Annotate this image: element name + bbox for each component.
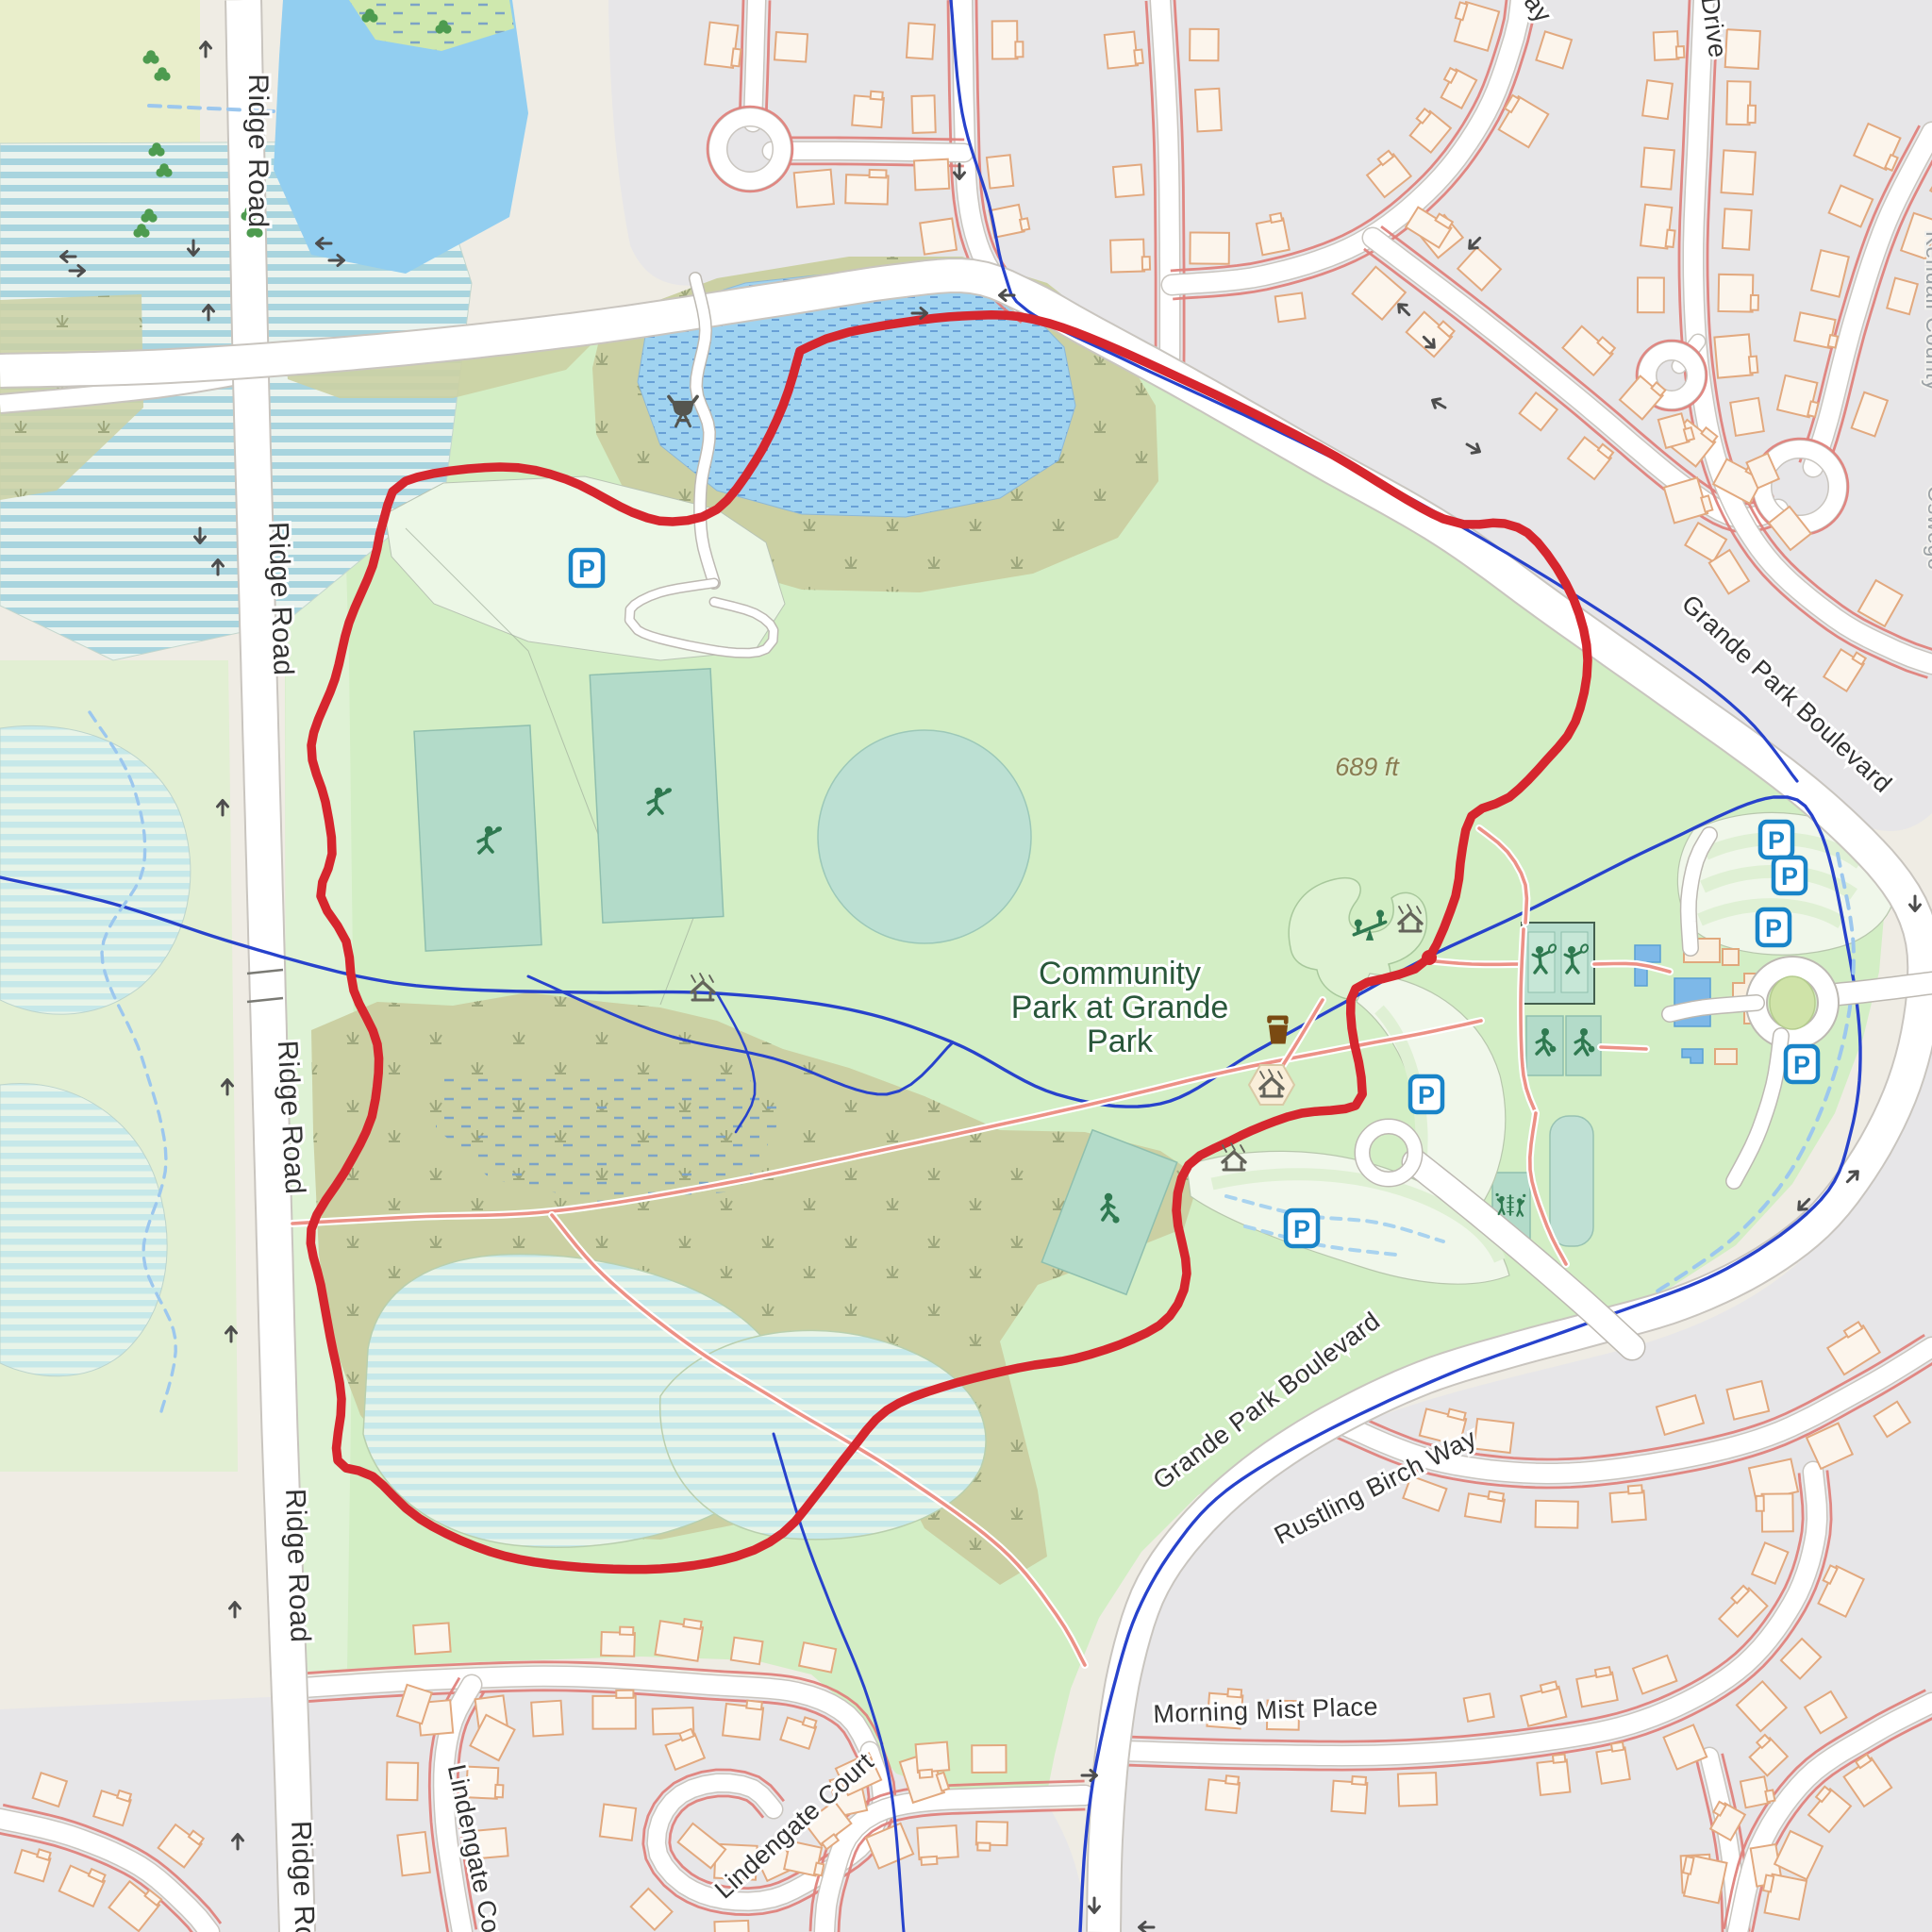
house-footprint (1638, 277, 1664, 312)
park-name-label: Community (1039, 956, 1201, 991)
house-footprint (413, 1623, 451, 1654)
street-label: Ridge Road (279, 1488, 316, 1642)
house-footprint (914, 159, 949, 191)
house-footprint (987, 155, 1013, 188)
parking-icon (1286, 1210, 1318, 1246)
house-footprint (1190, 29, 1219, 61)
house-footprint (1757, 1493, 1793, 1531)
house-footprint (387, 1762, 419, 1800)
park-name-label: Park at Grande (1011, 990, 1229, 1025)
route-waypoint (1422, 950, 1437, 965)
house-footprint (907, 23, 935, 58)
street-label: Ridge Road (262, 521, 299, 675)
house-footprint (600, 1805, 636, 1840)
house-footprint (397, 1832, 429, 1875)
house-footprint (531, 1701, 563, 1737)
house-footprint (1464, 1693, 1494, 1721)
street-label: Ridge Road (285, 1820, 322, 1932)
parking-icon (1410, 1076, 1442, 1112)
house-footprint (1642, 80, 1673, 119)
house-footprint (774, 32, 808, 61)
parking-icon (1760, 822, 1792, 858)
park-name-label: Park (1087, 1024, 1154, 1059)
house-footprint (731, 1638, 763, 1664)
house-footprint (794, 170, 834, 208)
house-footprint (1275, 293, 1306, 323)
elevation-label: 689 ft (1335, 753, 1400, 781)
parking-icon (1757, 909, 1790, 945)
house-footprint (911, 95, 935, 133)
house-footprint (1398, 1773, 1437, 1806)
house-footprint (1110, 239, 1150, 272)
house-footprint (1641, 148, 1674, 190)
house-footprint (1722, 150, 1756, 194)
house-footprint (1536, 1501, 1578, 1528)
boundary-label: Oswego (1924, 486, 1932, 571)
parking-icon (1786, 1046, 1818, 1082)
street-label: Ridge Road (242, 74, 274, 227)
house-footprint (1723, 208, 1752, 249)
house-footprint (1718, 275, 1758, 312)
house-footprint (972, 1745, 1006, 1773)
house-footprint (1113, 164, 1143, 196)
parking-icon (571, 550, 603, 586)
house-footprint (592, 1690, 635, 1729)
house-footprint (920, 219, 957, 255)
house-footprint (1195, 89, 1222, 132)
house-footprint (1190, 232, 1229, 263)
map-viewport[interactable]: P (0, 0, 1932, 1932)
parking-icon (1774, 858, 1806, 893)
boundary-label: Kendall County (1922, 231, 1932, 391)
house-footprint (1730, 398, 1764, 436)
map-canvas[interactable]: P (0, 0, 1932, 1932)
house-footprint (714, 1921, 749, 1932)
